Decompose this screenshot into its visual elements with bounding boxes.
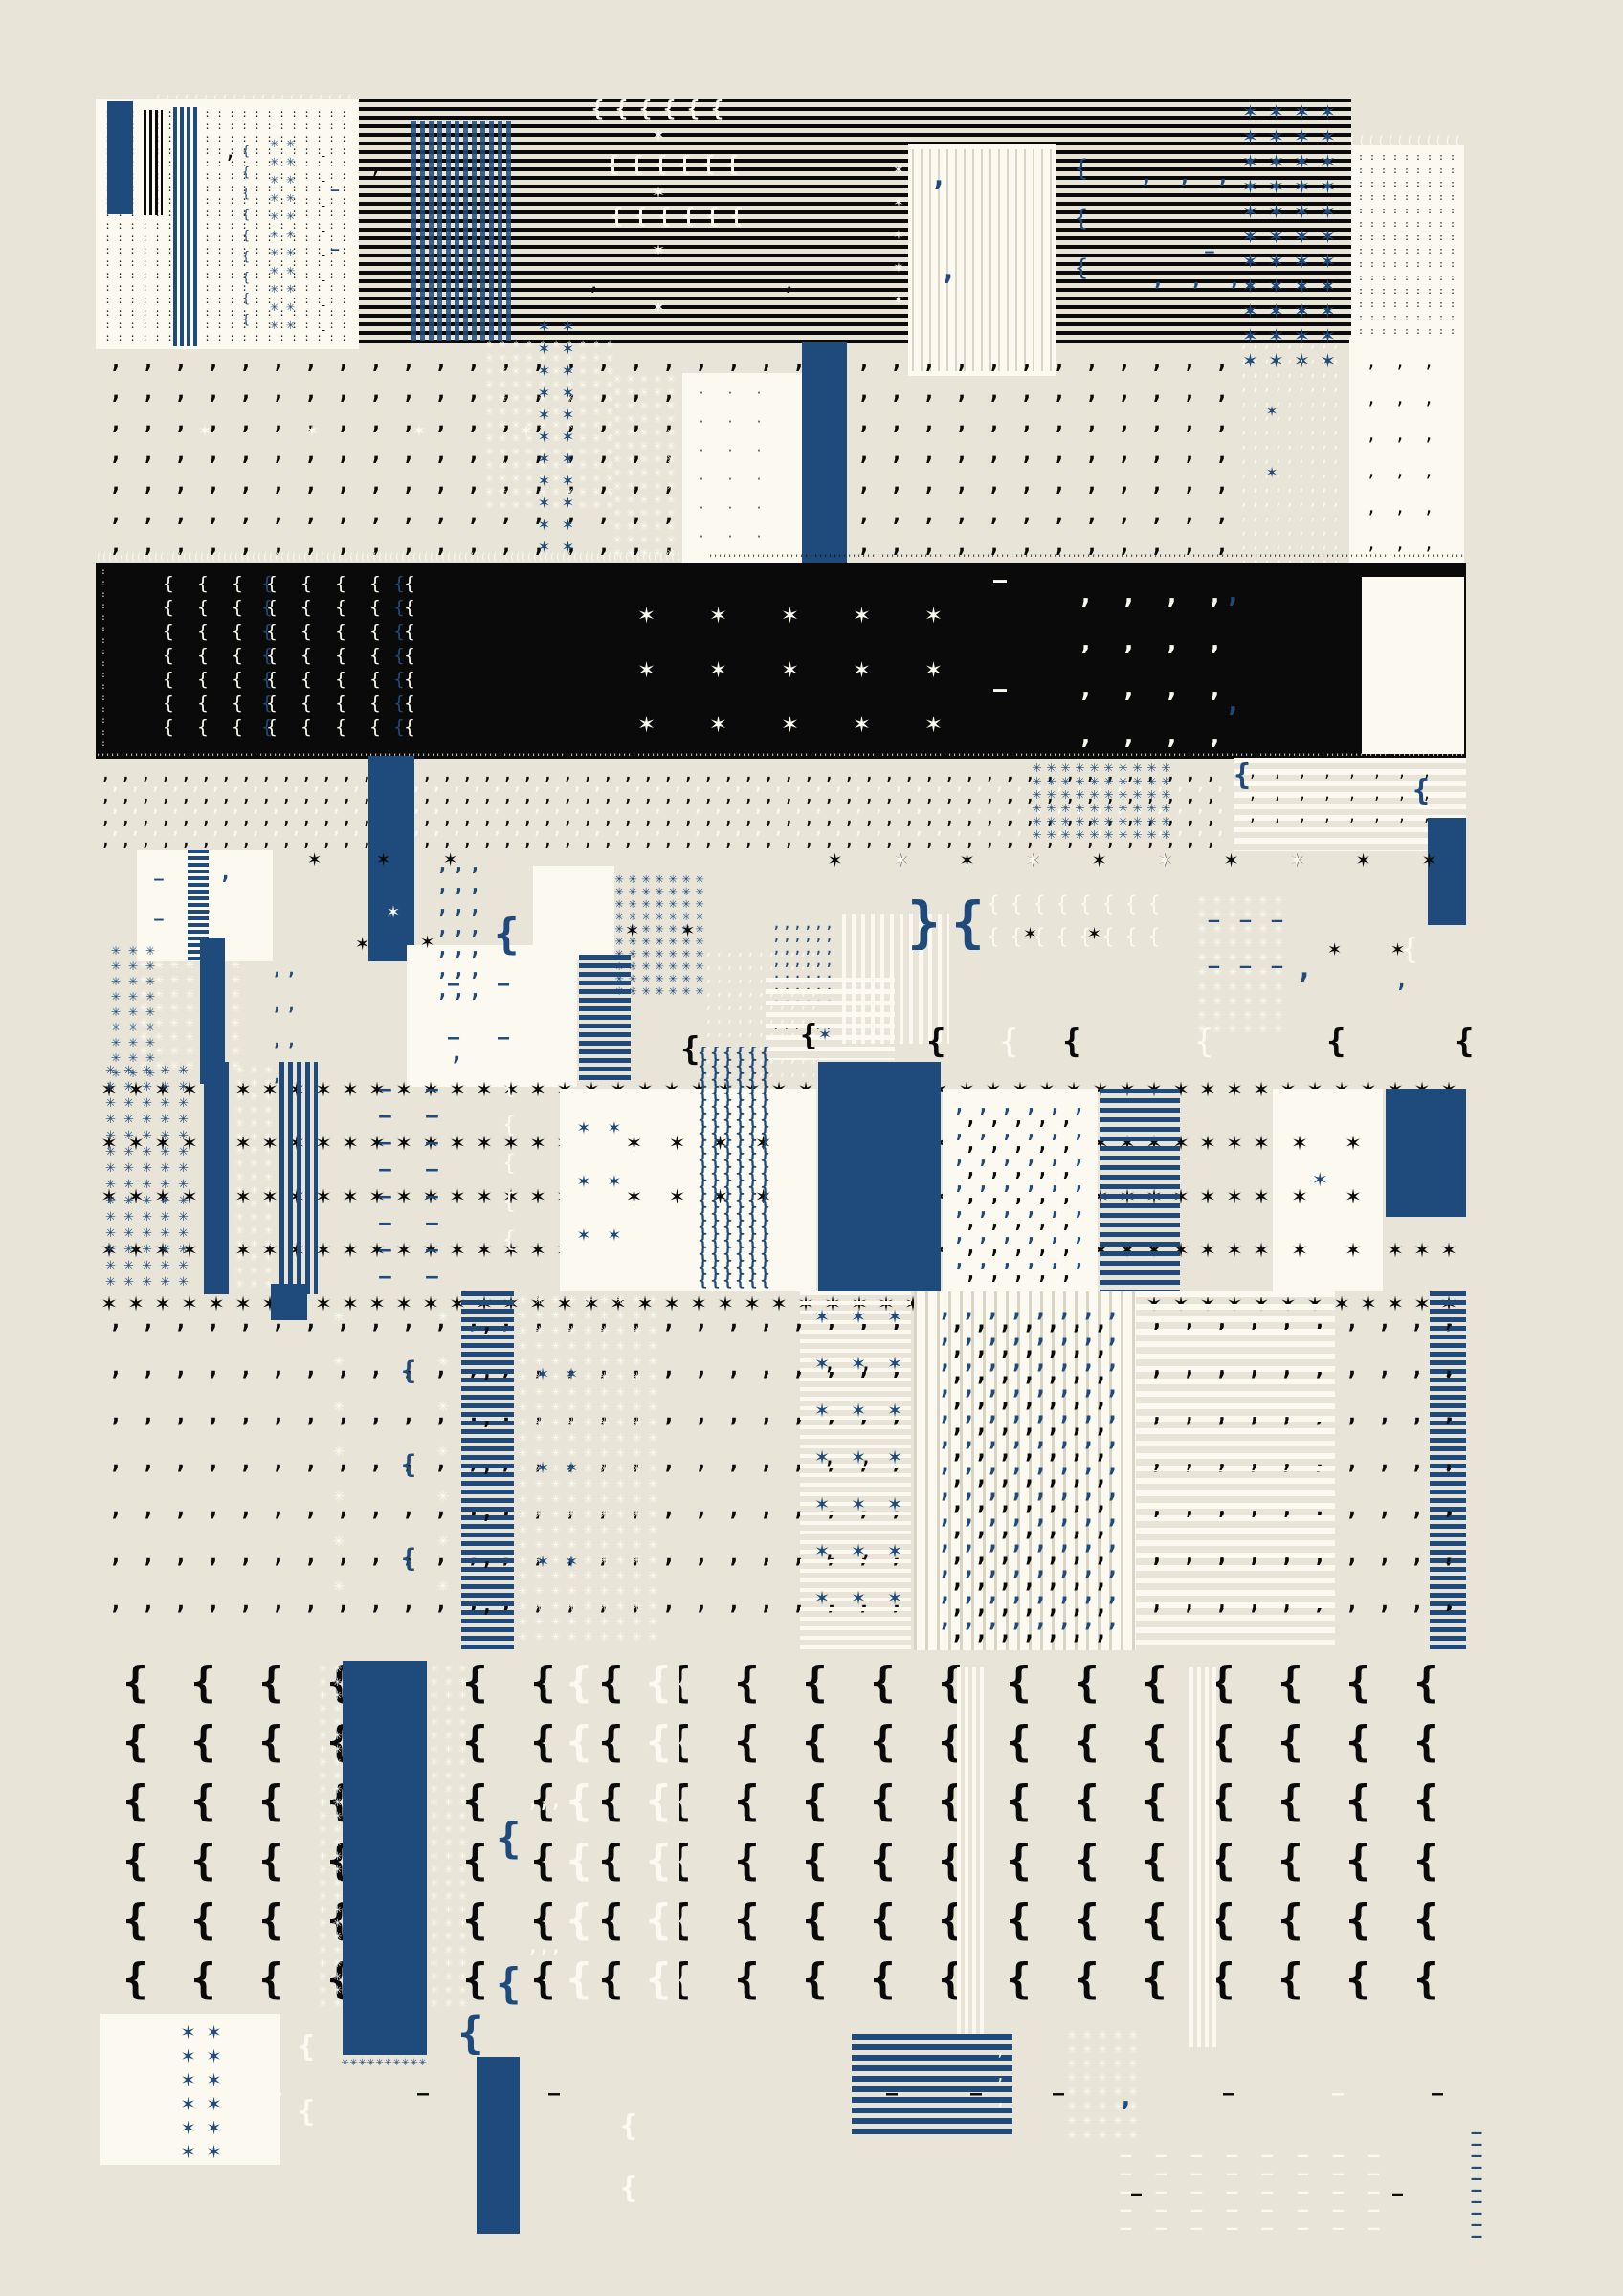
sb-blue-vbar xyxy=(204,1062,229,1294)
bb-comma-grid: ,,,,,,,,,,,,,,,, xyxy=(1064,570,1241,760)
lc-comma-cols-black: ,,,,,,,,,,,,,,,,,,,,,,,,,,,,,,,,,,,,,,,,… xyxy=(945,1308,1129,1647)
top-blue-comma-b: , xyxy=(940,256,957,285)
mid-brace-row-b: { xyxy=(926,1026,945,1058)
bot-dash-6: – xyxy=(1053,2084,1064,2103)
bg-white-quotes1: ’’’ xyxy=(526,1802,561,1821)
bb-star-grid: ✶✶✶✶✶✶✶✶✶✶✶✶✶✶✶ xyxy=(611,587,993,752)
tl-dark-hatch-bar xyxy=(144,110,163,215)
right-white-comma-texture: ,,,,,,,,,,,,,,,,,,,,,,,,,,,,,,,,,,,,,,,,… xyxy=(1238,337,1349,568)
mid-brace-row-c: { xyxy=(999,1026,1018,1058)
bb-white-rect xyxy=(1362,577,1464,754)
mid-patch-star2: ✶ xyxy=(681,920,694,941)
mid-acc-comma1: , xyxy=(1296,955,1313,983)
upper-blue-star-col: ✶✶✶✶✶✶✶✶✶✶✶✶✶✶✶✶✶✶✶✶✶✶ xyxy=(532,316,586,576)
brace-grid: {{{{{{{{{{{{{{{{{{{{{{{{{{{{{{{{{{{{{{{{… xyxy=(101,1653,1468,2009)
mid-brace-row-f: { xyxy=(1326,1026,1345,1058)
bb-top-fringe-left: ((((((((((((((((((((((((((((((((((((((((… xyxy=(96,551,708,564)
bot-dash-black-b: – xyxy=(1392,2185,1403,2203)
sb-rows-over-white2: ✶✶✶✶✶✶ xyxy=(1273,1115,1383,1297)
bot-white-brace-col: {{ xyxy=(293,2015,320,2206)
mid-patch-star1: ✶ xyxy=(626,920,638,941)
upper-crosshatch-block2: ✳✳✳✳✳✳✳✳✳✳✳✳✳✳✳✳✳✳✳✳✳✳✳✳✳✳✳✳✳✳✳✳✳✳✳✳✳✳✳✳… xyxy=(611,371,683,574)
mid-acc-brace-w: { xyxy=(1401,936,1418,964)
lc-blue-star-pairs: ✶✶✶✶✶✶ xyxy=(528,1326,591,1642)
mid-rect-a-dashes: –– xyxy=(149,859,168,955)
bb-white-dash-b: – xyxy=(993,677,1007,700)
sb-left-blue-dense: ✳✳✳✳✳✳✳✳✳✳✳✳✳✳✳✳✳✳✳✳✳✳✳✳✳✳✳✳✳✳✳✳✳✳✳✳✳✳✳✳… xyxy=(101,1062,197,1294)
bot-dash-1: – xyxy=(270,2084,281,2103)
tl-blue-brace-col: {{{{{{{{{ xyxy=(237,142,255,347)
bb-white-dash-a: – xyxy=(993,568,1007,591)
tl-blue-star-col: ✳✳✳✳✳✳✳✳✳✳✳✳✳✳✳✳✳✳✳✳✳✳ xyxy=(266,134,299,346)
top-blue-star-grid: ✶✶✶✶✶✶✶✶✶✶✶✶✶✶✶✶✶✶✶✶✶✶✶✶✶✶✶✶✶✶✶✶✶✶✶✶✶✶✶✶… xyxy=(1237,99,1352,376)
top-white-star-col-a: ✶✶✶✶ xyxy=(647,105,670,340)
bot-block-quotes: ’’’ xyxy=(991,2047,1009,2124)
mid-white-hstripe-block xyxy=(766,978,895,1060)
tl-blue-dashes: –– xyxy=(327,161,343,290)
bb-blue-brace-col1: {{{{{{{ xyxy=(256,572,278,754)
mid-brace-row-star: ✶ xyxy=(819,1024,831,1043)
bg-white-quotes2: ’’’ xyxy=(526,1948,561,1967)
sb-blue-star-pairs: ✶✶✶✶✶✶ xyxy=(568,1100,635,1291)
bot-dash-8: – xyxy=(1332,2084,1344,2103)
top-comma-accent-2: , xyxy=(369,157,382,178)
mid-white-block-b xyxy=(533,866,614,960)
bot-dash-7: – xyxy=(1223,2084,1234,2103)
sb-blue-dash-grid: –––––––––––––––– xyxy=(362,1075,462,1291)
top-blue-dashes2: – xyxy=(1201,215,1218,320)
strip-star-l1: ✶ xyxy=(308,850,321,871)
top-blue-comma-row: ,,, xyxy=(1127,163,1242,191)
top-comma-accent-1: , xyxy=(224,142,236,163)
mid-star-b2: ✶ xyxy=(421,932,434,953)
sb-blue-hatch2 xyxy=(279,1062,318,1294)
mid-rect-a-comma: , xyxy=(219,863,232,884)
bg-white-vbar1 xyxy=(957,1667,988,2035)
sb-blue-hstripe-block xyxy=(1100,1089,1180,1293)
mid-blue-brace-big: { xyxy=(494,914,520,956)
strip-blue-patch: ✳✳✳✳✳✳✳✳✳✳✳✳✳✳✳✳✳✳✳✳✳✳✳✳✳✳✳✳✳✳✳✳✳✳✳✳✳✳✳✳… xyxy=(1030,761,1185,845)
top-comma-accent-3: , xyxy=(588,274,600,295)
tl-blue-hatch-bar xyxy=(173,107,200,346)
top-blue-comma-row2: ,,, xyxy=(1139,266,1254,295)
top-blue-comma-a: , xyxy=(930,163,947,191)
mid-star-b1: ✶ xyxy=(356,934,368,955)
strip-blue-brace-a: { xyxy=(1234,762,1251,790)
mid-brace-row-e: { xyxy=(1194,1026,1213,1058)
artwork-canvas: ::::::::::::::::::::::::::::::::::::::::… xyxy=(0,0,1623,2296)
top-white-brace-cluster-2: {{{{{{ xyxy=(601,151,752,186)
sb-blue-rect xyxy=(818,1062,941,1291)
bg-white-star-texR: ✳✳✳✳✳✳✳✳✳✳✳✳✳✳✳✳✳✳✳✳✳✳✳✳✳✳✳✳✳✳✳✳✳✳✳✳✳✳✳✳… xyxy=(427,1661,480,2011)
top-white-star-col-b: ✶✶✶✶✶ xyxy=(888,153,909,325)
bg-white-star-texL: ✳✳✳✳✳✳✳✳✳✳✳✳✳✳✳✳✳✳✳✳✳✳✳✳✳✳✳✳✳✳✳✳✳✳✳✳✳✳✳✳… xyxy=(316,1661,345,2011)
strip-blue-vbar xyxy=(368,756,414,961)
bot-dash-black-a: – xyxy=(1131,2185,1142,2203)
sb-comma-block-black: ,,,,,,,,,,,,,,,,,,,,,,,,,,,,,,,,,,, xyxy=(959,1105,1093,1290)
sb-blue-star-acc: ✶ xyxy=(1313,1167,1326,1190)
bot-white-dash-grid: –––––––––––––––––––––––––––––––––––––––– xyxy=(1108,2147,1395,2239)
mid-rect-b-comma: , xyxy=(450,1041,463,1064)
mid-brace-row-h: { xyxy=(1455,1026,1474,1058)
sb-blue-rect2 xyxy=(1386,1089,1466,1217)
bot-dash-3: – xyxy=(548,2084,560,2103)
bot-blue-dash-col: –––––––––– xyxy=(1460,2128,1493,2244)
upper-white-block2-dots: ·················· xyxy=(687,379,800,570)
strip-blue-brace-b: { xyxy=(1412,777,1430,806)
bb-blue-comma-a: , xyxy=(1225,580,1241,607)
bg-blue-brace2: { xyxy=(496,1963,522,2005)
top-blue-brace-col2: {{{ xyxy=(1072,143,1091,297)
strip-star-row-white: ✶✶✶✶ xyxy=(834,848,1466,872)
right-rect-commas: ,,,,,,,,,,,,,,,,,, xyxy=(1357,344,1458,563)
bg-blue-brace1: { xyxy=(496,1818,522,1860)
right-texture-blue-stars: ✶✶ xyxy=(1259,381,1284,534)
bg-blue-vbar xyxy=(343,1661,427,2055)
lc-vbar2-commas: ,,,,,,, xyxy=(1435,1297,1462,1649)
bot-dash-9: – xyxy=(1432,2084,1443,2103)
mid-brace-row-a: { xyxy=(800,1022,817,1050)
mid-blue-dash-grid: –––––– xyxy=(1198,897,1294,1007)
bg-white-col1: {{{{{{ xyxy=(558,1653,600,2009)
bg-white-vbar2 xyxy=(1189,1667,1218,2047)
sb-white-brace-col: {{{{{ xyxy=(494,1068,524,1295)
lc-hstripe-commas: ,,,,,,,,,,,,,,,,,,,,,,,,,,,,,,,,,,, xyxy=(1141,1297,1330,1649)
mid-acc-comma2: , xyxy=(1395,971,1408,992)
bb-blue-brace-col2: {{{{{{{ xyxy=(389,572,410,754)
top-comma-accent-4: , xyxy=(783,274,795,295)
bot-blue-comma: , xyxy=(1118,2084,1134,2110)
lc-white-star-col1: ✳✳✳✳✳✳✳ xyxy=(326,1293,351,1649)
mid-acc-star1: ✶ xyxy=(1328,939,1341,960)
bb-left-dot-col: :::::::::::::::: xyxy=(98,566,109,756)
top-blue-streaks xyxy=(411,121,512,341)
lc-star-cols-commas: ,,,,,, xyxy=(811,1317,907,1643)
lc-blue-accent-rect xyxy=(271,1284,307,1320)
lc-blue-brace-col: {{{ xyxy=(392,1325,425,1655)
mid-brace-row-d: { xyxy=(1062,1026,1081,1058)
bg-vbar-fringe: ✳✳✳✳✳✳✳✳✳✳ xyxy=(341,2055,429,2072)
mid-blue-comma-triplets: ,,,,,,,,,,,,,,,,,,,,, xyxy=(434,853,484,1004)
bot-blue-vbar xyxy=(477,2057,520,2234)
sb-blue-brace-blob: {{{{{{{{{{{{{{{{{{{{{{{{{{{{{{{{{{{{{{{{… xyxy=(697,1047,777,1293)
bot-white-brace-col2: {{ xyxy=(617,2095,640,2234)
bb-top-fringe-right: ''''''''''''''''''''''''''''''''''''''''… xyxy=(708,553,1464,564)
tl-white-fringe: ((((((((((((((((((((( xyxy=(153,92,356,107)
bg-white-col2: {{{{{{ xyxy=(637,1653,679,2009)
bot-blue-stars: ✶✶✶✶✶✶✶✶✶✶✶✶ xyxy=(175,2020,227,2164)
mid-blue-brace-r1: } xyxy=(907,894,941,950)
lc-white-star-col2: ✳✳✳✳✳✳✳ xyxy=(429,1293,457,1649)
mid-brace-row-stars: ✶✶ xyxy=(998,920,1151,945)
bot-blue-brace: { xyxy=(457,2011,484,2055)
lc-vbar-commas: ,,,,,,, xyxy=(471,1301,503,1647)
bb-blue-comma-b: , xyxy=(1225,689,1241,716)
mid-blue-brace-r2: { xyxy=(951,894,985,950)
sb-white-hatch: ✳✳✳✳✳✳✳✳✳✳✳✳✳✳✳✳✳✳✳✳✳✳✳✳✳✳✳✳✳✳✳✳✳✳✳✳✳✳✳✳… xyxy=(233,1062,277,1294)
bot-blue-hstripe-block xyxy=(852,2034,1012,2137)
mid-star-w1: ✶ xyxy=(388,901,399,920)
top-white-brace-cluster-3: {{{{{{ xyxy=(605,203,760,237)
bot-dash-2: – xyxy=(417,2084,429,2103)
tl-blue-bar xyxy=(107,101,133,214)
strip-star-l2: ✶ xyxy=(377,850,389,871)
upper-blue-vbar xyxy=(802,342,847,577)
